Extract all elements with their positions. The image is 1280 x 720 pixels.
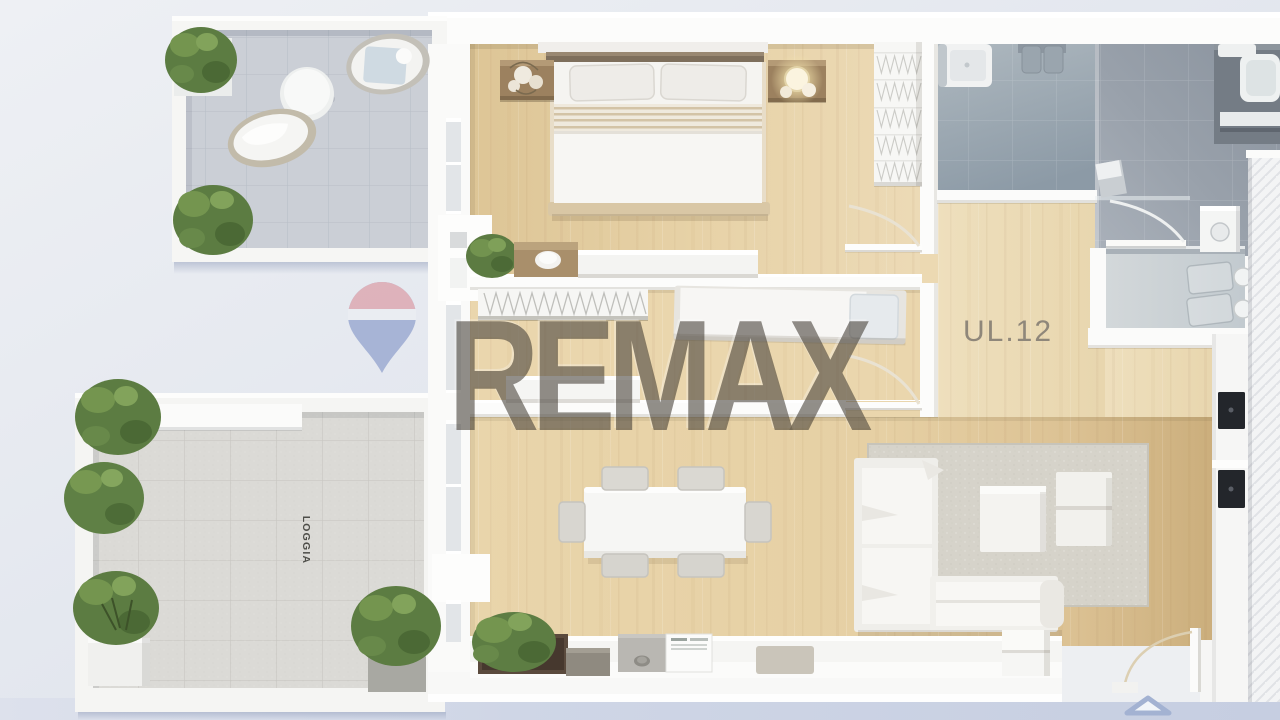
svg-text:UL.12: UL.12 (963, 315, 1053, 348)
svg-text:LOGGIA: LOGGIA (300, 516, 312, 565)
svg-text:REMAX: REMAX (448, 288, 872, 465)
